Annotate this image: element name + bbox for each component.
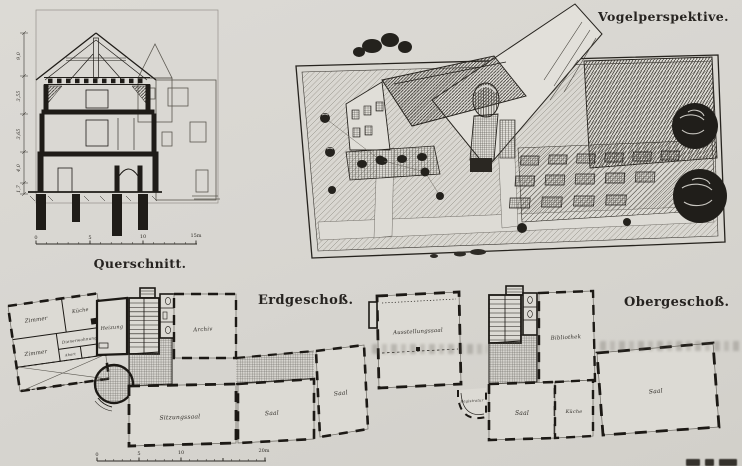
dim-label: 9,0 [16, 52, 22, 60]
dim-label: 3,65 [16, 129, 22, 140]
scale-label: 0 [95, 452, 98, 458]
landing-tiled [489, 335, 537, 384]
saal-rechts-og-room: Saal [597, 343, 719, 435]
kueche-room: Küche [555, 380, 593, 438]
saal-rechts-room: Saal [316, 345, 368, 437]
scale-label: 15m [190, 233, 201, 239]
querschnitt-drawing: 9,0 3,55 3,65 4,0 1,7 0 5 10 15m [0, 0, 240, 285]
erdgeschoss-drawing: Zimmer Küche Zimmer Dienerwohnung Abort … [0, 285, 375, 466]
dim-label: 3,55 [16, 91, 22, 102]
dim-label: 1,7 [16, 184, 22, 193]
saal-links-room: Saal [489, 382, 555, 440]
room-label-saal-rechts: Saal [334, 389, 349, 397]
vogelperspektive-drawing [282, 0, 742, 295]
room-label-archiv: Archiv [192, 326, 213, 333]
scale-label: 10 [178, 450, 184, 456]
cut-off-print-fragment [686, 459, 737, 466]
left-wing: Zimmer Küche Zimmer Dienerwohnung Abort [8, 293, 109, 391]
querschnitt-scale-bar [36, 241, 197, 245]
stairs-upper [489, 286, 523, 343]
scale-label: 10 [140, 234, 146, 240]
section-backdrop [36, 10, 218, 203]
corridor-tiled [236, 351, 314, 384]
wc-cells-upper [523, 293, 537, 335]
querschnitt-panel: 9,0 3,55 3,65 4,0 1,7 0 5 10 15m [0, 0, 240, 285]
vogelperspektive-title: Vogelperspektive. [598, 9, 729, 24]
dimension-labels: 9,0 3,55 3,65 4,0 1,7 [16, 52, 22, 193]
obergeschoss-panel: Ausstellungssaal [368, 285, 742, 466]
bushes-top [353, 33, 412, 57]
dim-label: 4,0 [16, 164, 22, 173]
scale-label: 5 [137, 451, 140, 457]
ink-bleedthrough-left [372, 344, 487, 354]
room-label-saal-links: Saal [515, 410, 529, 417]
querschnitt-title: Querschnitt. [60, 256, 220, 271]
erdgeschoss-scale-bar [97, 458, 266, 462]
saal-mitte-room: Saal [238, 379, 314, 443]
scale-label: 5 [88, 235, 91, 241]
erdgeschoss-title: Erdgeschoß. [258, 293, 353, 308]
ausstellungssaal-room: Ausstellungssaal [369, 292, 461, 388]
erdgeschoss-panel: Zimmer Küche Zimmer Dienerwohnung Abort … [0, 285, 375, 466]
turret-room [95, 365, 133, 411]
vogelperspektive-panel [282, 0, 742, 295]
room-label-saal-mitte: Saal [265, 410, 279, 418]
stairs [129, 288, 159, 354]
room-label-kueche-og: Küche [565, 409, 583, 415]
room-label-sitzungssaal: Sitzungssaal [159, 413, 200, 421]
heizung-room: Heizung [97, 298, 127, 355]
obergeschoss-drawing: Ausstellungssaal [368, 285, 742, 466]
scale-label: 20m [258, 448, 269, 454]
bibliothek-room: Bibliothek [539, 291, 595, 383]
room-label-saal-rechts-og: Saal [649, 387, 664, 395]
ink-bleedthrough-right [600, 341, 740, 351]
scanned-architectural-page: 9,0 3,55 3,65 4,0 1,7 0 5 10 15m Quersch… [0, 0, 742, 466]
scale-label: 0 [34, 235, 37, 241]
erdgeschoss-scale-labels: 0 5 10 20m [95, 448, 269, 458]
registratur-bay: Registratur [458, 388, 486, 418]
obergeschoss-title: Obergeschoß. [624, 295, 729, 310]
sitzungssaal-room: Sitzungssaal [129, 384, 236, 446]
archiv-room: Archiv [174, 294, 236, 358]
